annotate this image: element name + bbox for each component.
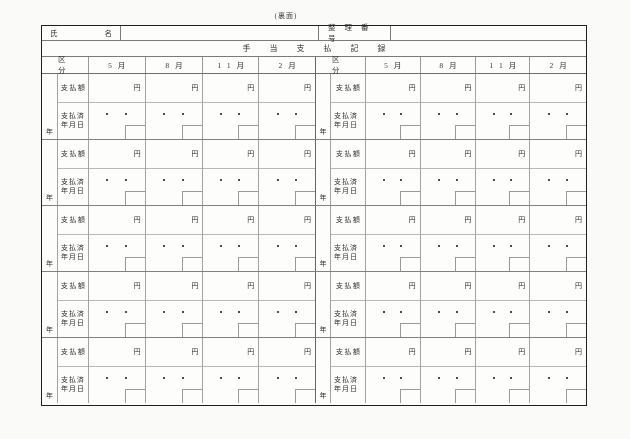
year-cell: 年 — [42, 338, 58, 403]
date-entry-box — [509, 191, 529, 205]
paid-date-entry-cell — [421, 169, 476, 205]
amount-row-label: 支払額 — [58, 140, 88, 169]
paid-date-entry-cell — [259, 169, 315, 205]
paid-date-entry-cell — [146, 367, 203, 403]
date-separator-dot — [438, 113, 440, 115]
yen-unit-label: 円 — [134, 149, 141, 159]
paid-date-row-label: 支払済年月日 — [331, 235, 365, 271]
amount-entry-cell: 円 — [530, 206, 586, 235]
amount-entry-cell: 円 — [146, 74, 203, 103]
amount-entry-cell: 円 — [530, 74, 586, 103]
yen-unit-label: 円 — [518, 215, 525, 225]
yen-unit-label: 円 — [409, 215, 416, 225]
yen-unit-label: 円 — [191, 347, 198, 357]
paid-date-entry-cell — [530, 169, 586, 205]
date-separator-dot — [493, 179, 495, 181]
amount-entry-cell: 円 — [366, 272, 420, 301]
month-column: 円 — [259, 206, 316, 271]
date-separator-dot — [548, 179, 550, 181]
yen-unit-label: 円 — [575, 149, 582, 159]
amount-entry-cell: 円 — [259, 140, 315, 169]
month-column: 円 — [259, 272, 316, 337]
yen-unit-label: 円 — [247, 83, 254, 93]
paid-date-entry-cell — [530, 235, 586, 271]
month-column: 円 — [421, 272, 477, 337]
date-separator-dot — [510, 179, 512, 181]
date-separator-dot — [220, 377, 222, 379]
column-header-month: 11月 — [203, 57, 259, 73]
row-label-column: 支払額支払済年月日 — [58, 140, 89, 205]
date-separator-dot — [125, 113, 127, 115]
month-column: 円 — [89, 74, 146, 139]
date-separator-dot — [295, 113, 297, 115]
paid-date-row-label: 支払済年月日 — [331, 367, 365, 403]
date-separator-dot — [238, 245, 240, 247]
date-separator-dot — [277, 245, 279, 247]
month-column: 円 — [146, 74, 204, 139]
yen-unit-label: 円 — [247, 149, 254, 159]
date-entry-box — [509, 323, 529, 337]
name-label-first: 氏 — [50, 28, 58, 39]
paid-date-entry-cell — [476, 301, 529, 337]
date-separator-dot — [510, 377, 512, 379]
yen-unit-label: 円 — [575, 83, 582, 93]
date-entry-box — [566, 323, 586, 337]
date-entry-box — [455, 323, 475, 337]
date-entry-box — [182, 125, 202, 139]
month-column: 円 — [89, 272, 146, 337]
month-column: 円 — [476, 74, 530, 139]
paid-date-entry-cell — [476, 169, 529, 205]
date-separator-dot — [277, 377, 279, 379]
amount-entry-cell: 円 — [366, 206, 420, 235]
year-unit-label: 年 — [319, 325, 326, 335]
paid-date-label-line1: 支払済 — [334, 112, 365, 121]
month-column: 円 — [146, 206, 204, 271]
year-unit-label: 年 — [46, 259, 53, 269]
record-block: 年支払額支払済年月日円円円円年支払額支払済年月日円円円円 — [42, 206, 586, 272]
date-separator-dot — [493, 377, 495, 379]
year-cell: 年 — [316, 338, 331, 403]
paid-date-label-line2: 年月日 — [61, 187, 88, 196]
yen-unit-label: 円 — [575, 281, 582, 291]
date-separator-dot — [163, 113, 165, 115]
yen-unit-label: 円 — [409, 281, 416, 291]
column-header-month: 8月 — [421, 57, 477, 73]
yen-unit-label: 円 — [464, 281, 471, 291]
yen-unit-label: 円 — [191, 83, 198, 93]
date-entry-box — [400, 323, 420, 337]
paid-date-entry-cell — [89, 367, 145, 403]
column-header-kubun: 区分 — [316, 57, 366, 73]
month-column: 円 — [366, 206, 421, 271]
date-entry-box — [182, 257, 202, 271]
year-cell: 年 — [42, 206, 58, 271]
payment-record-form: 氏 名 整理番号 手当支払記録 区分5月8月11月2月区分5月8月11月2月 年… — [41, 25, 587, 406]
date-separator-dot — [383, 179, 385, 181]
amount-entry-cell: 円 — [476, 338, 529, 367]
date-separator-dot — [438, 311, 440, 313]
date-separator-dot — [566, 113, 568, 115]
form-body: 年支払額支払済年月日円円円円年支払額支払済年月日円円円円年支払額支払済年月日円円… — [42, 74, 586, 403]
month-column: 円 — [366, 272, 421, 337]
yen-unit-label: 円 — [191, 281, 198, 291]
date-separator-dot — [456, 377, 458, 379]
row-label-column: 支払額支払済年月日 — [58, 206, 89, 271]
row-label-column: 支払額支払済年月日 — [58, 338, 89, 403]
date-entry-box — [125, 257, 145, 271]
amount-row-label: 支払額 — [331, 206, 365, 235]
date-separator-dot — [295, 179, 297, 181]
name-serial-row: 氏 名 整理番号 — [42, 26, 586, 41]
month-column: 円 — [203, 140, 259, 205]
date-separator-dot — [456, 245, 458, 247]
year-unit-label: 年 — [46, 391, 53, 401]
date-separator-dot — [125, 377, 127, 379]
date-separator-dot — [238, 311, 240, 313]
paid-date-label-line1: 支払済 — [61, 112, 88, 121]
amount-entry-cell: 円 — [89, 272, 145, 301]
name-label: 氏 名 — [42, 26, 121, 40]
date-separator-dot — [163, 245, 165, 247]
paid-date-label-line2: 年月日 — [61, 385, 88, 394]
month-column: 円 — [366, 338, 421, 403]
paid-date-entry-cell — [259, 103, 315, 139]
month-column: 円 — [421, 206, 477, 271]
date-separator-dot — [456, 179, 458, 181]
record-block: 年支払額支払済年月日円円円円年支払額支払済年月日円円円円 — [42, 140, 586, 206]
date-entry-box — [509, 125, 529, 139]
date-separator-dot — [106, 311, 108, 313]
paid-date-entry-cell — [203, 169, 258, 205]
name-label-second: 名 — [105, 28, 113, 39]
yen-unit-label: 円 — [134, 215, 141, 225]
date-separator-dot — [182, 311, 184, 313]
row-label-column: 支払額支払済年月日 — [58, 272, 89, 337]
date-entry-box — [455, 257, 475, 271]
month-column: 円 — [259, 140, 316, 205]
date-separator-dot — [277, 113, 279, 115]
amount-entry-cell: 円 — [476, 272, 529, 301]
amount-row-label: 支払額 — [331, 140, 365, 169]
paid-date-entry-cell — [421, 367, 476, 403]
column-header-month: 5月 — [89, 57, 146, 73]
amount-entry-cell: 円 — [146, 338, 203, 367]
amount-entry-cell: 円 — [421, 338, 476, 367]
paid-date-entry-cell — [146, 169, 203, 205]
month-column: 円 — [530, 272, 586, 337]
date-entry-box — [238, 323, 258, 337]
month-column: 円 — [89, 206, 146, 271]
month-column: 円 — [259, 338, 316, 403]
yen-unit-label: 円 — [409, 83, 416, 93]
paid-date-entry-cell — [203, 235, 258, 271]
date-entry-box — [509, 389, 529, 403]
month-column: 円 — [530, 74, 586, 139]
paid-date-entry-cell — [203, 301, 258, 337]
date-separator-dot — [510, 245, 512, 247]
paid-date-entry-cell — [146, 235, 203, 271]
paid-date-label-line2: 年月日 — [334, 319, 365, 328]
month-column: 円 — [530, 338, 586, 403]
amount-entry-cell: 円 — [476, 140, 529, 169]
yen-unit-label: 円 — [134, 281, 141, 291]
date-separator-dot — [566, 179, 568, 181]
amount-entry-cell: 円 — [259, 272, 315, 301]
date-separator-dot — [220, 179, 222, 181]
date-entry-box — [400, 125, 420, 139]
amount-row-label: 支払額 — [331, 338, 365, 367]
month-column: 円 — [476, 140, 530, 205]
date-separator-dot — [400, 179, 402, 181]
paid-date-entry-cell — [366, 301, 420, 337]
date-separator-dot — [163, 377, 165, 379]
date-separator-dot — [295, 311, 297, 313]
year-unit-label: 年 — [319, 259, 326, 269]
date-entry-box — [295, 125, 315, 139]
date-entry-box — [125, 191, 145, 205]
month-column: 円 — [421, 140, 477, 205]
date-entry-box — [566, 191, 586, 205]
row-label-column: 支払額支払済年月日 — [331, 140, 366, 205]
paid-date-entry-cell — [259, 301, 315, 337]
amount-entry-cell: 円 — [530, 338, 586, 367]
date-separator-dot — [400, 245, 402, 247]
date-entry-box — [455, 389, 475, 403]
column-header-row: 区分5月8月11月2月区分5月8月11月2月 — [42, 57, 586, 74]
date-separator-dot — [548, 113, 550, 115]
paid-date-entry-cell — [421, 301, 476, 337]
month-column: 円 — [203, 206, 259, 271]
date-separator-dot — [383, 245, 385, 247]
date-separator-dot — [238, 179, 240, 181]
date-separator-dot — [106, 179, 108, 181]
month-column: 円 — [476, 338, 530, 403]
paid-date-entry-cell — [259, 367, 315, 403]
date-separator-dot — [383, 311, 385, 313]
paid-date-label-line1: 支払済 — [334, 310, 365, 319]
amount-entry-cell: 円 — [203, 272, 258, 301]
yen-unit-label: 円 — [304, 347, 311, 357]
paid-date-label-line2: 年月日 — [334, 253, 365, 262]
record-block: 年支払額支払済年月日円円円円年支払額支払済年月日円円円円 — [42, 338, 586, 403]
year-cell: 年 — [316, 206, 331, 271]
month-column: 円 — [530, 140, 586, 205]
amount-entry-cell: 円 — [421, 74, 476, 103]
yen-unit-label: 円 — [518, 347, 525, 357]
date-separator-dot — [238, 377, 240, 379]
month-column: 円 — [366, 74, 421, 139]
date-separator-dot — [548, 377, 550, 379]
paid-date-label-line1: 支払済 — [334, 376, 365, 385]
date-separator-dot — [125, 311, 127, 313]
amount-row-label: 支払額 — [58, 338, 88, 367]
date-entry-box — [295, 389, 315, 403]
month-column: 円 — [421, 74, 477, 139]
paid-date-label-line1: 支払済 — [334, 178, 365, 187]
date-entry-box — [125, 125, 145, 139]
yen-unit-label: 円 — [464, 83, 471, 93]
date-entry-box — [182, 191, 202, 205]
month-column: 円 — [476, 272, 530, 337]
month-column: 円 — [146, 140, 204, 205]
yen-unit-label: 円 — [464, 149, 471, 159]
amount-entry-cell: 円 — [89, 140, 145, 169]
date-separator-dot — [383, 113, 385, 115]
paid-date-label-line2: 年月日 — [334, 385, 365, 394]
paid-date-row-label: 支払済年月日 — [331, 169, 365, 205]
date-separator-dot — [566, 311, 568, 313]
amount-entry-cell: 円 — [366, 140, 420, 169]
date-separator-dot — [220, 245, 222, 247]
date-separator-dot — [566, 377, 568, 379]
column-header-month: 2月 — [530, 57, 586, 73]
date-separator-dot — [125, 179, 127, 181]
serial-number-entry-area — [391, 26, 586, 40]
record-block: 年支払額支払済年月日円円円円年支払額支払済年月日円円円円 — [42, 74, 586, 140]
date-separator-dot — [182, 179, 184, 181]
amount-entry-cell: 円 — [421, 272, 476, 301]
date-separator-dot — [510, 113, 512, 115]
amount-entry-cell: 円 — [203, 338, 258, 367]
year-unit-label: 年 — [319, 193, 326, 203]
column-header-month: 8月 — [146, 57, 204, 73]
yen-unit-label: 円 — [409, 347, 416, 357]
date-entry-box — [509, 257, 529, 271]
date-entry-box — [400, 389, 420, 403]
form-title: 手当支払記録 — [42, 41, 586, 57]
date-separator-dot — [182, 245, 184, 247]
year-unit-label: 年 — [46, 193, 53, 203]
date-entry-box — [125, 323, 145, 337]
month-column: 円 — [421, 338, 477, 403]
column-header-month: 5月 — [366, 57, 421, 73]
date-entry-box — [295, 191, 315, 205]
name-entry-area — [121, 26, 319, 40]
paid-date-entry-cell — [421, 235, 476, 271]
paid-date-row-label: 支払済年月日 — [58, 301, 88, 337]
amount-entry-cell: 円 — [530, 272, 586, 301]
paid-date-label-line2: 年月日 — [334, 121, 365, 130]
amount-entry-cell: 円 — [476, 206, 529, 235]
paid-date-label-line2: 年月日 — [334, 187, 365, 196]
date-entry-box — [125, 389, 145, 403]
paid-date-entry-cell — [530, 301, 586, 337]
yen-unit-label: 円 — [464, 347, 471, 357]
date-separator-dot — [493, 311, 495, 313]
date-separator-dot — [510, 311, 512, 313]
yen-unit-label: 円 — [247, 281, 254, 291]
date-separator-dot — [400, 377, 402, 379]
paid-date-label-line1: 支払済 — [61, 310, 88, 319]
paid-date-entry-cell — [203, 367, 258, 403]
date-separator-dot — [493, 245, 495, 247]
date-entry-box — [455, 191, 475, 205]
month-column: 円 — [366, 140, 421, 205]
date-separator-dot — [456, 113, 458, 115]
row-label-column: 支払額支払済年月日 — [331, 74, 366, 139]
serial-number-label: 整理番号 — [319, 26, 391, 40]
date-entry-box — [295, 257, 315, 271]
paid-date-entry-cell — [366, 169, 420, 205]
paid-date-entry-cell — [89, 301, 145, 337]
month-column: 円 — [476, 206, 530, 271]
amount-entry-cell: 円 — [259, 74, 315, 103]
date-entry-box — [400, 191, 420, 205]
date-separator-dot — [566, 245, 568, 247]
year-cell: 年 — [316, 272, 331, 337]
date-separator-dot — [383, 377, 385, 379]
paid-date-row-label: 支払済年月日 — [58, 103, 88, 139]
date-entry-box — [238, 125, 258, 139]
date-separator-dot — [438, 245, 440, 247]
date-entry-box — [566, 257, 586, 271]
amount-entry-cell: 円 — [146, 272, 203, 301]
amount-entry-cell: 円 — [366, 338, 420, 367]
amount-entry-cell: 円 — [366, 74, 420, 103]
amount-entry-cell: 円 — [421, 206, 476, 235]
date-entry-box — [295, 323, 315, 337]
amount-row-label: 支払額 — [331, 272, 365, 301]
year-unit-label: 年 — [319, 391, 326, 401]
yen-unit-label: 円 — [304, 281, 311, 291]
year-cell: 年 — [42, 74, 58, 139]
date-separator-dot — [456, 311, 458, 313]
yen-unit-label: 円 — [304, 149, 311, 159]
date-entry-box — [566, 125, 586, 139]
date-separator-dot — [106, 113, 108, 115]
yen-unit-label: 円 — [304, 215, 311, 225]
paid-date-entry-cell — [366, 235, 420, 271]
column-header-month: 11月 — [476, 57, 530, 73]
row-label-column: 支払額支払済年月日 — [58, 74, 89, 139]
paid-date-entry-cell — [366, 103, 420, 139]
date-separator-dot — [163, 179, 165, 181]
paid-date-label-line1: 支払済 — [61, 178, 88, 187]
year-unit-label: 年 — [319, 127, 326, 137]
column-header-kubun: 区分 — [42, 57, 89, 73]
month-column: 円 — [530, 206, 586, 271]
date-separator-dot — [295, 245, 297, 247]
amount-entry-cell: 円 — [203, 206, 258, 235]
date-separator-dot — [220, 311, 222, 313]
amount-entry-cell: 円 — [89, 338, 145, 367]
paid-date-entry-cell — [476, 367, 529, 403]
date-separator-dot — [106, 377, 108, 379]
paid-date-row-label: 支払済年月日 — [58, 235, 88, 271]
date-separator-dot — [400, 311, 402, 313]
date-separator-dot — [400, 113, 402, 115]
amount-entry-cell: 円 — [146, 140, 203, 169]
date-entry-box — [238, 191, 258, 205]
date-separator-dot — [438, 179, 440, 181]
month-column: 円 — [89, 338, 146, 403]
paid-date-row-label: 支払済年月日 — [331, 103, 365, 139]
date-separator-dot — [438, 377, 440, 379]
date-separator-dot — [182, 377, 184, 379]
month-column: 円 — [203, 74, 259, 139]
date-entry-box — [566, 389, 586, 403]
paid-date-entry-cell — [366, 367, 420, 403]
date-entry-box — [182, 389, 202, 403]
date-separator-dot — [295, 377, 297, 379]
date-separator-dot — [125, 245, 127, 247]
amount-entry-cell: 円 — [89, 74, 145, 103]
amount-entry-cell: 円 — [421, 140, 476, 169]
month-column: 円 — [203, 338, 259, 403]
yen-unit-label: 円 — [464, 215, 471, 225]
row-label-column: 支払額支払済年月日 — [331, 272, 366, 337]
